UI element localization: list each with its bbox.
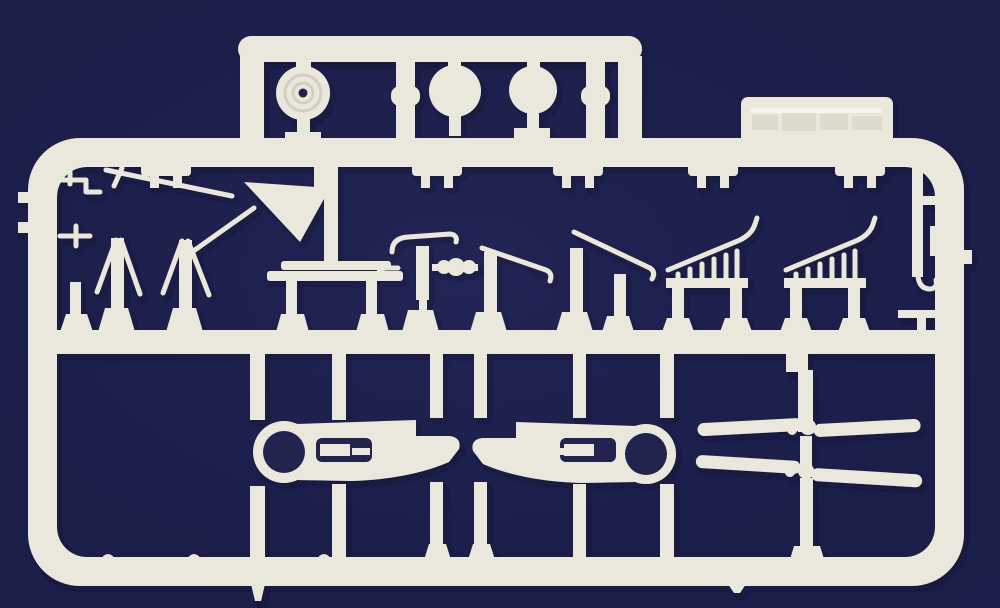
t-fitting-disc <box>914 332 928 346</box>
round-disc <box>429 65 481 117</box>
sprue-photo-canvas <box>0 0 1000 608</box>
brand-label-tab <box>741 97 893 144</box>
runner-molded-segment <box>391 86 420 106</box>
runner-molded-segment <box>581 86 610 106</box>
wheel-hub-hole <box>299 89 308 98</box>
cowling-opening-right <box>625 433 667 475</box>
cowling-opening-left <box>263 431 305 473</box>
hatch-pad <box>553 150 603 176</box>
plank-upper <box>281 261 391 270</box>
photo-of-model-kit-sprue <box>0 0 1000 608</box>
hatch-pad <box>141 150 191 176</box>
plank-lower <box>267 271 403 281</box>
label-emboss-highlight <box>751 108 881 113</box>
spindle-knob <box>437 260 451 274</box>
hatch-pad <box>688 150 738 176</box>
spindle-knob <box>462 260 476 274</box>
middle-runner <box>56 330 936 354</box>
hatch-pad <box>835 150 885 176</box>
round-disc <box>509 66 557 114</box>
hatch-pad <box>412 150 462 176</box>
plank-runner-stub <box>324 164 338 268</box>
